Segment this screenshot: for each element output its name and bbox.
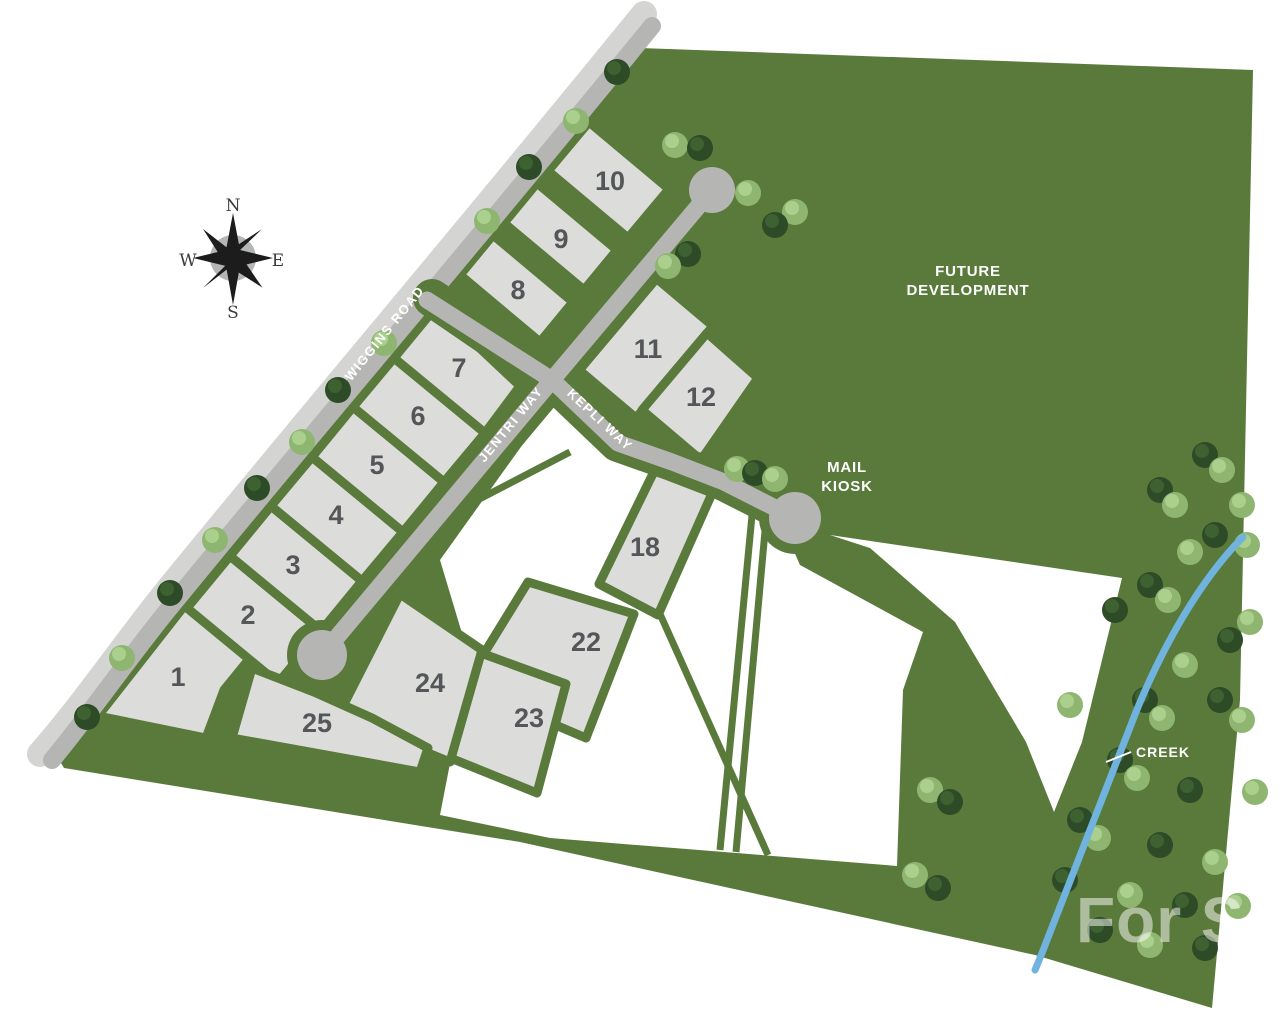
tree-icon: [1217, 627, 1243, 653]
tree-highlight: [1158, 589, 1172, 603]
lot-number-label: 9: [553, 224, 568, 254]
tree-icon: [1172, 652, 1198, 678]
tree-icon: [244, 475, 270, 501]
tree-highlight: [328, 379, 342, 393]
svg-text:CREEK: CREEK: [1136, 744, 1190, 760]
tree-icon: [1057, 692, 1083, 718]
tree-highlight: [1212, 459, 1226, 473]
tree-icon: [604, 59, 630, 85]
tree-highlight: [1180, 541, 1194, 555]
tree-highlight: [1195, 444, 1209, 458]
tree-highlight: [1232, 494, 1246, 508]
lot-number-label: 1: [170, 662, 185, 692]
tree-icon: [563, 108, 589, 134]
lot-number-label: 11: [634, 334, 663, 364]
tree-icon: [1229, 492, 1255, 518]
lot-number-label: 18: [630, 532, 660, 562]
tree-highlight: [920, 779, 934, 793]
tree-highlight: [785, 201, 799, 215]
tree-icon: [762, 466, 788, 492]
tree-icon: [109, 645, 135, 671]
tree-icon: [516, 154, 542, 180]
tree-icon: [735, 180, 761, 206]
tree-highlight: [1140, 574, 1154, 588]
north-culdesac: [689, 167, 735, 213]
for-sale-watermark: For Sale: [1076, 884, 1284, 956]
tree-icon: [1124, 765, 1150, 791]
lot-number-label: 2: [240, 600, 255, 630]
tree-highlight: [1180, 779, 1194, 793]
tree-highlight: [1150, 479, 1164, 493]
tree-icon: [202, 527, 228, 553]
lot-number-label: 6: [410, 401, 425, 431]
tree-highlight: [1127, 767, 1141, 781]
svg-text:FUTURE: FUTURE: [935, 263, 1001, 280]
lot-number-label: 8: [510, 275, 525, 305]
tree-icon: [74, 704, 100, 730]
lot-number-label: 10: [595, 166, 625, 196]
tree-highlight: [205, 529, 219, 543]
compass-north-label: N: [226, 196, 241, 216]
tree-highlight: [477, 210, 491, 224]
tree-icon: [474, 208, 500, 234]
tree-icon: [1102, 597, 1128, 623]
tree-highlight: [292, 431, 306, 445]
lot-number-label: 7: [451, 353, 466, 383]
tree-icon: [1242, 779, 1268, 805]
tree-highlight: [765, 214, 779, 228]
tree-highlight: [566, 110, 580, 124]
tree-highlight: [1220, 629, 1234, 643]
tree-highlight: [607, 61, 621, 75]
tree-icon: [1237, 609, 1263, 635]
compass-east-label: E: [272, 251, 284, 271]
tree-highlight: [112, 647, 126, 661]
tree-highlight: [1232, 709, 1246, 723]
tree-icon: [1209, 457, 1235, 483]
tree-icon: [762, 212, 788, 238]
tree-icon: [1202, 522, 1228, 548]
tree-icon: [1162, 492, 1188, 518]
tree-icon: [937, 789, 963, 815]
tree-icon: [1155, 587, 1181, 613]
compass-south-label: S: [227, 303, 239, 323]
lot-number-label: 5: [369, 450, 384, 480]
tree-highlight: [1060, 694, 1074, 708]
lot-number-label: 23: [514, 703, 544, 733]
tree-highlight: [765, 468, 779, 482]
jentri-culdesac: [297, 630, 347, 680]
tree-highlight: [690, 137, 704, 151]
tree-highlight: [658, 255, 672, 269]
tree-highlight: [738, 182, 752, 196]
tree-highlight: [678, 243, 692, 257]
lot-number-label: 12: [686, 382, 716, 412]
tree-highlight: [1240, 611, 1254, 625]
tree-highlight: [940, 791, 954, 805]
kepli-culdesac: [769, 492, 821, 544]
tree-highlight: [665, 134, 679, 148]
lot-number-label: 3: [285, 550, 300, 580]
tree-icon: [902, 862, 928, 888]
tree-icon: [662, 132, 688, 158]
tree-highlight: [745, 462, 759, 476]
tree-highlight: [1105, 599, 1119, 613]
tree-icon: [1147, 832, 1173, 858]
tree-highlight: [727, 458, 741, 472]
tree-highlight: [905, 864, 919, 878]
tree-icon: [925, 875, 951, 901]
tree-icon: [325, 377, 351, 403]
tree-highlight: [1210, 689, 1224, 703]
tree-highlight: [1165, 494, 1179, 508]
tree-highlight: [247, 477, 261, 491]
tree-highlight: [1152, 707, 1166, 721]
tree-icon: [1229, 707, 1255, 733]
tree-icon: [289, 429, 315, 455]
tree-highlight: [160, 582, 174, 596]
compass-west-label: W: [179, 251, 197, 271]
tree-highlight: [1150, 834, 1164, 848]
tree-highlight: [77, 706, 91, 720]
lot-number-label: 24: [415, 668, 445, 698]
lot-number-label: 25: [302, 708, 332, 738]
svg-text:MAIL: MAIL: [827, 459, 867, 476]
tree-highlight: [928, 877, 942, 891]
tree-highlight: [1175, 654, 1189, 668]
tree-highlight: [519, 156, 533, 170]
tree-highlight: [1205, 524, 1219, 538]
tree-icon: [1177, 539, 1203, 565]
tree-icon: [1149, 705, 1175, 731]
tree-icon: [655, 253, 681, 279]
tree-icon: [1202, 849, 1228, 875]
compass-rose: N E S W: [179, 196, 284, 323]
tree-icon: [1207, 687, 1233, 713]
compass-hub: [223, 248, 243, 268]
tree-icon: [157, 580, 183, 606]
tree-icon: [1177, 777, 1203, 803]
lot-number-label: 4: [328, 500, 343, 530]
site-plan-map: 1234567891011121822232425 WIGGINS ROAD J…: [0, 0, 1284, 1016]
svg-text:DEVELOPMENT: DEVELOPMENT: [907, 282, 1030, 299]
tree-highlight: [1245, 781, 1259, 795]
tree-icon: [687, 135, 713, 161]
tree-highlight: [1070, 809, 1084, 823]
svg-text:KIOSK: KIOSK: [821, 478, 873, 495]
tree-highlight: [1205, 851, 1219, 865]
lot-number-label: 22: [571, 627, 601, 657]
